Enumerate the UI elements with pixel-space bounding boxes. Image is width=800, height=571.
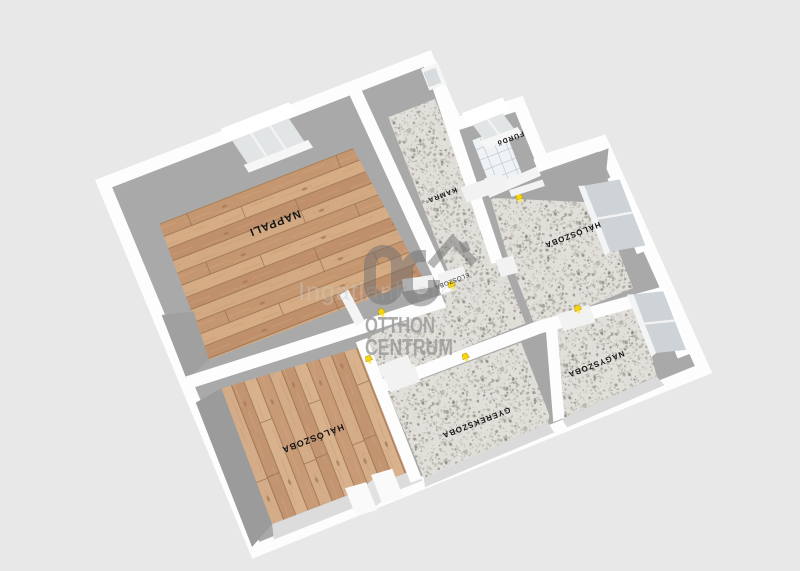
svg-text:CENTRUM: CENTRUM <box>365 334 453 360</box>
